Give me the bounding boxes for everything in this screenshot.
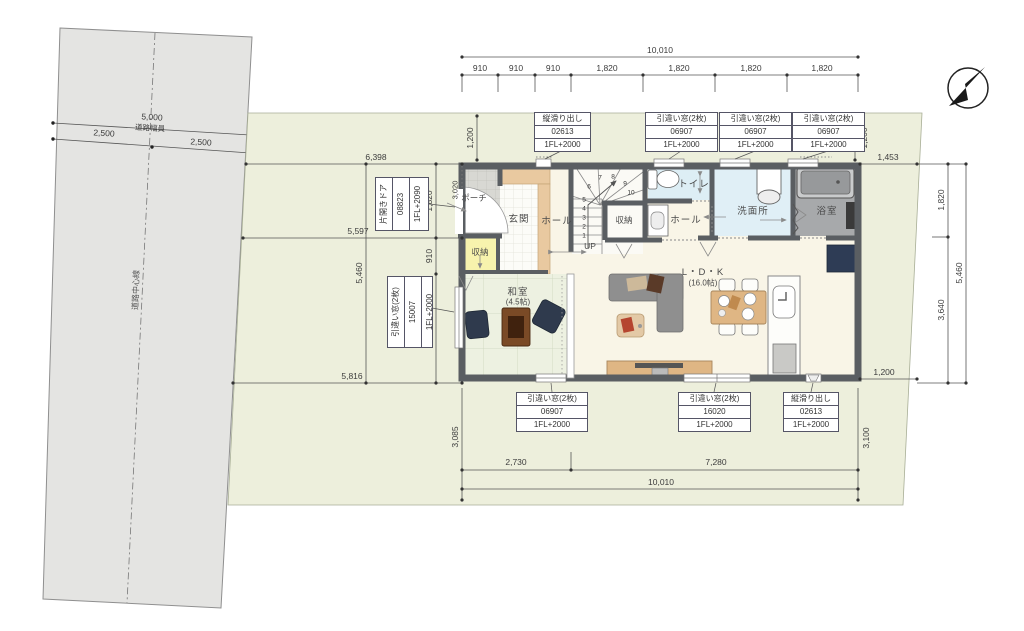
window-level: 1FL+2000 [793, 138, 864, 151]
sliding-partition [567, 274, 574, 378]
door-code: 08823 [392, 178, 409, 230]
dim-right-5460: 5,460 [954, 262, 964, 283]
window-code: 02613 [535, 125, 590, 138]
bathtub-inner [801, 171, 850, 194]
road-width-right: 2,500 [190, 136, 212, 147]
dim-left-5816: 5,816 [341, 371, 362, 381]
window-type: 引違い窓(2枚) [517, 393, 587, 405]
dim-right-1453: 1,453 [877, 152, 898, 162]
dim-top-seg-4: 1,820 [596, 63, 617, 73]
north-arrow-icon [948, 67, 988, 108]
door-tag-left: 片開きドア 08823 1FL+2090 [375, 177, 429, 231]
stair-number-2: 2 [582, 224, 586, 231]
refrigerator [827, 245, 858, 272]
room-label-bathroom: 浴室 [816, 203, 837, 217]
window-tag-top-1: 縦滑り出し 02613 1FL+2000 [534, 112, 591, 152]
window-level: 1FL+2000 [535, 138, 590, 151]
toilet-tank [648, 170, 657, 189]
sofa-cushion [626, 276, 648, 292]
room-label-porch: ポーチ [461, 192, 487, 204]
stairs-up-label: UP [584, 241, 596, 251]
window-code: 06907 [720, 125, 791, 138]
window-type: 引違い窓(2枚) [646, 113, 717, 125]
room-label-ldk: L・D・K [682, 264, 724, 278]
window-level: 1FL+2000 [517, 418, 587, 431]
floor-plan-drawing [0, 0, 1024, 631]
dim-left-5460: 5,460 [354, 262, 364, 283]
dim-bottom-2730: 2,730 [505, 457, 526, 467]
window-tag-bottom-2: 引違い窓(2枚) 16020 1FL+2000 [678, 392, 751, 432]
window-tag-top-3: 引違い窓(2枚) 06907 1FL+2000 [719, 112, 792, 152]
window-code: 16020 [679, 405, 750, 418]
door-level: 1FL+2090 [409, 178, 426, 230]
window-level: 1FL+2000 [720, 138, 791, 151]
window-type: 縦滑り出し [784, 393, 838, 405]
window-type: 引違い窓(2枚) [720, 113, 791, 125]
floor-chair-left [465, 310, 490, 339]
dim-top-seg-3: 910 [546, 63, 560, 73]
dim-left-5597: 5,597 [347, 226, 368, 236]
floor-plan-canvas: 5,000 道路幅員 2,500 2,500 道路中心線 10,010 910 … [0, 0, 1024, 631]
dim-top-seg-2: 910 [509, 63, 523, 73]
road-width-total: 5,000 [141, 111, 163, 122]
dim-top-seg-6: 1,820 [740, 63, 761, 73]
dim-left-6398: 6,398 [365, 152, 386, 162]
stair-number-4: 4 [582, 206, 586, 213]
window-code: 15007 [404, 277, 421, 347]
room-label-washroom: 洗面所 [737, 203, 769, 217]
window-tag-top-4: 引違い窓(2枚) 06907 1FL+2000 [792, 112, 865, 152]
window-type: 引違い窓(2枚) [793, 113, 864, 125]
kitchen-stove [773, 344, 796, 373]
tv [635, 363, 683, 368]
bathtub-drain [836, 180, 840, 184]
dim-top-seg-5: 1,820 [668, 63, 689, 73]
window-tag-bottom-1: 引違い窓(2枚) 06907 1FL+2000 [516, 392, 588, 432]
window-type: 縦滑り出し [535, 113, 590, 125]
window-code: 02613 [784, 405, 838, 418]
stair-number-3: 3 [582, 215, 586, 222]
dim-top-seg-1: 910 [473, 63, 487, 73]
room-label-closet-stairs: 収納 [615, 214, 632, 226]
dim-right-1820: 1,820 [936, 189, 946, 210]
table-dot [638, 324, 642, 328]
dim-porch-3020: 3,020 [451, 181, 460, 200]
dim-bottom-3100: 3,100 [861, 427, 871, 448]
window-type: 引違い窓(2枚) [679, 393, 750, 405]
road-centerline-label: 道路中心線 [130, 270, 142, 310]
window-code: 06907 [517, 405, 587, 418]
window-tag-top-2: 引違い窓(2枚) 06907 1FL+2000 [645, 112, 718, 152]
dim-top-offset-left: 1,200 [465, 127, 475, 148]
tv-stand [652, 368, 668, 375]
dim-bottom-7280: 7,280 [705, 457, 726, 467]
dim-bottom-3085: 3,085 [450, 426, 460, 447]
washer-drum [758, 190, 780, 204]
stair-number-1: 1 [582, 233, 586, 240]
window-code: 06907 [646, 125, 717, 138]
dim-right-3640: 3,640 [936, 299, 946, 320]
room-label-hall-back: ホール [670, 212, 702, 226]
road-width-caption: 道路幅員 [135, 122, 166, 135]
stair-number-9: 9 [623, 181, 627, 188]
room-label-closet-entrance: 収納 [471, 246, 488, 258]
window-tag-left: 引違い窓(2枚) 15007 1FL+2000 [387, 276, 433, 348]
stair-number-6: 6 [587, 184, 591, 191]
stair-number-5: 5 [582, 197, 586, 204]
room-label-hall-entrance: ホール [541, 213, 573, 227]
washbasin-bowl [651, 212, 664, 229]
toilet-bowl [657, 171, 679, 188]
dim-top-total: 10,010 [647, 45, 673, 55]
dim-bottom-total: 10,010 [648, 477, 674, 487]
stair-number-8: 8 [611, 174, 615, 181]
room-label-entrance: 玄関 [508, 211, 529, 225]
window-level: 1FL+2000 [646, 138, 717, 151]
dim-top-seg-7: 1,820 [811, 63, 832, 73]
low-table-top [508, 316, 524, 338]
room-label-japanese-room-size: (4.5帖) [506, 297, 530, 308]
stair-number-10: 10 [627, 190, 634, 197]
dim-left-910: 910 [424, 249, 434, 263]
window-level: 1FL+2000 [679, 418, 750, 431]
window-code: 06907 [793, 125, 864, 138]
room-label-toilet: トイレ [678, 176, 710, 190]
road-width-left: 2,500 [93, 127, 115, 138]
entrance-edge-wood [538, 184, 550, 274]
kitchen-sink [773, 286, 795, 318]
door-type: 片開きドア [376, 178, 392, 230]
dim-right-1200: 1,200 [873, 367, 894, 377]
window-level: 1FL+2000 [784, 418, 838, 431]
stair-number-7: 7 [598, 175, 602, 182]
window-type: 引違い窓(2枚) [388, 277, 404, 347]
room-label-ldk-size: (16.0帖) [689, 278, 718, 289]
window-tag-bottom-3: 縦滑り出し 02613 1FL+2000 [783, 392, 839, 432]
window-level: 1FL+2000 [421, 277, 438, 347]
